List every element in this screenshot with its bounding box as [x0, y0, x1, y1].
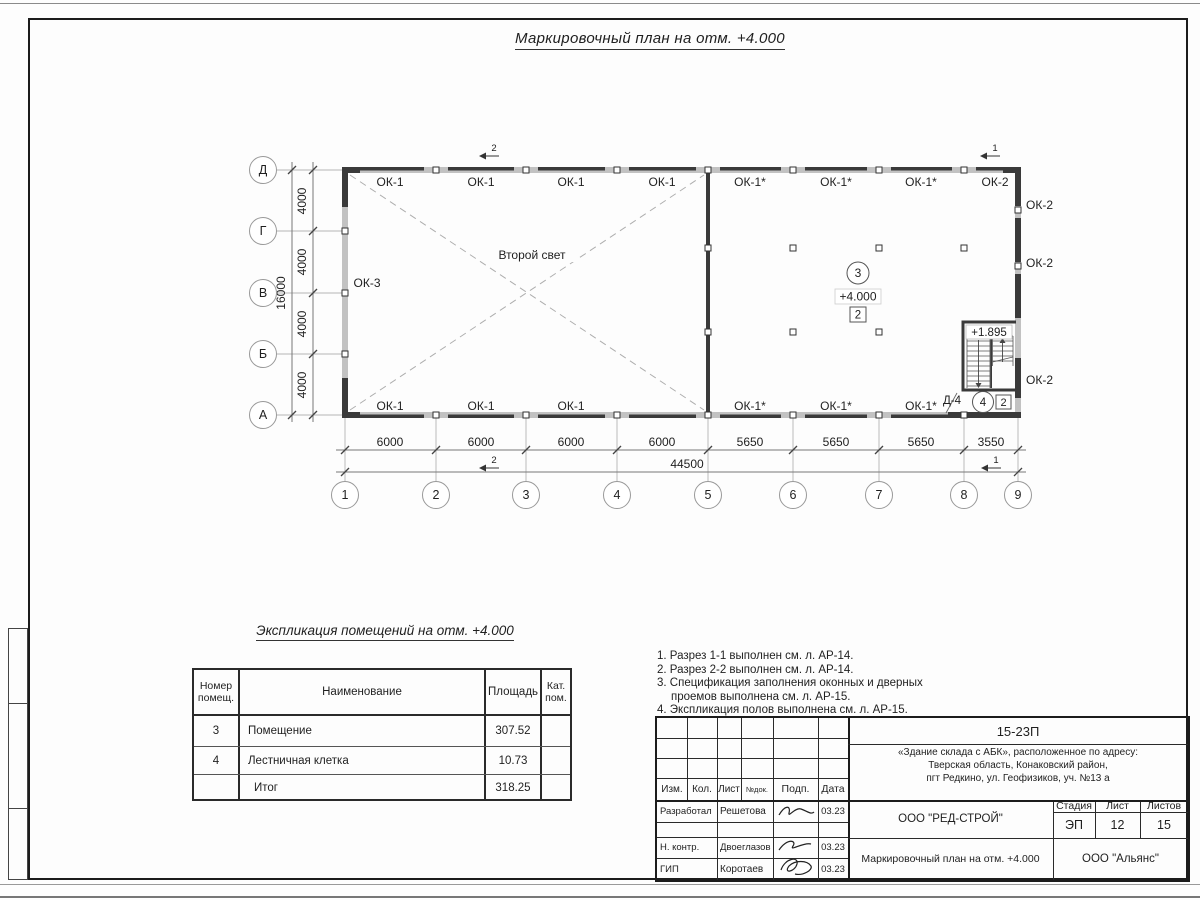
axis-label: Д: [259, 163, 268, 177]
window-label: ОК-1*: [905, 399, 937, 413]
table-cell: 10.73: [486, 748, 540, 774]
note-line: проемов выполнена см. л. АР-15.: [657, 691, 923, 705]
tb-sheet-label: Лист: [1095, 800, 1140, 812]
tb-header-kol: Кол.: [687, 778, 717, 800]
window-label: ОК-2: [982, 175, 1009, 189]
tb-name: Коротаев: [720, 858, 774, 880]
section-marker-1-top: 1: [980, 143, 1000, 160]
table-cell: Помещение: [240, 716, 484, 746]
dim-value: 4000: [295, 371, 309, 398]
column-header: Площадь: [486, 670, 540, 714]
explication-table: Номер помещ. Наименование Площадь Кат. п…: [192, 668, 572, 801]
title-block: Изм. Кол. Лист №док. Подп. Дата Разработ…: [655, 716, 1190, 882]
tb-header-doc: №док.: [741, 778, 773, 800]
explication-title: Экспликация помещений на отм. +4.000: [205, 622, 565, 641]
room-4-tag: Д-4 4 2: [943, 392, 1011, 413]
window-label: ОК-2: [1026, 373, 1053, 387]
axis-label: 7: [876, 488, 883, 502]
explication-title-text: Экспликация помещений на отм. +4.000: [256, 623, 514, 641]
axis-bubbles-bottom: 1 2 3 4 5 6 7 8 9: [332, 482, 1032, 509]
window-label: ОК-2: [1026, 256, 1053, 270]
table-cell: 318.25: [486, 776, 540, 799]
tb-stage-value: ЭП: [1053, 812, 1095, 838]
window-label: ОК-3: [354, 276, 381, 290]
window-label: ОК-1: [468, 399, 495, 413]
axis-label: Б: [259, 347, 267, 361]
tb-date: 03.23: [818, 837, 848, 858]
dim-value: 5650: [823, 435, 850, 449]
tb-sheets-value: 15: [1140, 812, 1188, 838]
axis-label: 6: [790, 488, 797, 502]
window-label: ОК-1: [649, 175, 676, 189]
table-cell: 4: [194, 748, 238, 774]
walls: [342, 167, 1021, 418]
dim-total-value: 44500: [670, 457, 704, 471]
table-divider: [194, 774, 570, 775]
tb-company: ООО "РЕД-СТРОЙ": [848, 800, 1053, 838]
room-elevation: +4.000: [839, 290, 876, 304]
dim-value: 5650: [737, 435, 764, 449]
section-marker-2-bottom: 2: [479, 455, 499, 472]
column-header: Кат. пом.: [542, 670, 570, 714]
axis-label: А: [259, 408, 268, 422]
room-type-badge: 2: [1000, 397, 1006, 409]
window-label: ОК-1: [377, 175, 404, 189]
axis-label: 2: [433, 488, 440, 502]
section-marker-label: 2: [491, 143, 496, 154]
axis-label: 8: [961, 488, 968, 502]
tb-sheet-value: 12: [1095, 812, 1140, 838]
drawing-sheet: Маркировочный план на отм. +4.000: [0, 0, 1200, 900]
window-label: ОК-1*: [734, 175, 766, 189]
signature-gip: [773, 836, 819, 880]
section-markers: 2 1 2 1: [479, 143, 1001, 472]
section-marker-2-top: 2: [479, 143, 499, 160]
tb-header-data: Дата: [818, 778, 848, 800]
dim-value: 6000: [377, 435, 404, 449]
tb-date: 03.23: [818, 800, 848, 822]
tb-name: Решетова: [720, 800, 772, 822]
section-marker-1-bottom: 1: [981, 455, 1001, 472]
axis-label: 5: [705, 488, 712, 502]
room-3-tag: 3 +4.000 2: [835, 262, 881, 322]
axis-label: 9: [1015, 488, 1022, 502]
dim-value: 5650: [908, 435, 935, 449]
table-cell: Итог: [240, 776, 484, 799]
tb-role: Н. контр.: [660, 837, 716, 858]
table-divider: [194, 746, 570, 747]
window-label: ОК-1*: [820, 399, 852, 413]
section-marker-label: 1: [992, 143, 997, 154]
dimensions-left: 4000 4000 4000 4000 16000: [274, 162, 317, 422]
tb-stage-label: Стадия: [1053, 800, 1095, 812]
table-cell: 3: [194, 716, 238, 746]
tb-address-line: пгт Редкино, ул. Геофизиков, уч. №13 а: [848, 772, 1188, 785]
window-label: ОК-2: [1026, 198, 1053, 212]
second-light-cross: Второй свет: [350, 175, 704, 410]
section-marker-label: 2: [491, 455, 496, 466]
column-header: Номер помещ.: [194, 670, 238, 714]
window-label: ОК-1: [558, 175, 585, 189]
tb-header-podp: Подп.: [773, 778, 818, 800]
dimensions-bottom: 6000 6000 6000 6000 5650 5650 5650 3550 …: [336, 435, 1026, 476]
window-labels: ОК-1 ОК-1 ОК-1 ОК-1 ОК-1* ОК-1* ОК-1* ОК…: [354, 175, 1054, 413]
tb-sheet-title: Маркировочный план на отм. +4.000: [848, 838, 1053, 880]
axis-label: 3: [523, 488, 530, 502]
axis-label: 4: [614, 488, 621, 502]
room-type-badge: 2: [855, 310, 861, 322]
column-header: Наименование: [240, 670, 484, 714]
axis-label: Г: [260, 224, 267, 238]
tb-doc-number: 15-23П: [848, 718, 1188, 744]
dim-value: 6000: [649, 435, 676, 449]
windows: [342, 167, 1021, 418]
tb-name: Двоеглазов: [720, 837, 774, 858]
door-label: Д-4: [943, 395, 962, 407]
dim-value: 4000: [295, 248, 309, 275]
room-number: 4: [980, 397, 987, 409]
columns: [342, 167, 1021, 418]
tb-role: Разработал: [660, 800, 716, 822]
dimension-values: 6000 6000 6000 6000 5650 5650 5650 3550 …: [377, 435, 1005, 471]
window-label: ОК-1: [468, 175, 495, 189]
window-label: ОК-1: [558, 399, 585, 413]
tb-address-line: Тверская область, Конаковский район,: [848, 759, 1188, 772]
dim-value: 4000: [295, 310, 309, 337]
note-line: 1. Разрез 1-1 выполнен см. л. АР-14.: [657, 650, 923, 664]
tb-header-izm: Изм.: [657, 778, 687, 800]
note-line: 2. Разрез 2-2 выполнен см. л. АР-14.: [657, 664, 923, 678]
section-marker-label: 1: [993, 455, 998, 466]
dim-value: 6000: [468, 435, 495, 449]
note-line: 3. Спецификация заполнения оконных и две…: [657, 677, 923, 691]
tb-address-line: «Здание склада с АБК», расположенное по …: [848, 746, 1188, 759]
dim-value: 4000: [295, 187, 309, 214]
axis-label: 1: [342, 488, 349, 502]
tb-date: 03.23: [818, 858, 848, 880]
table-cell: 307.52: [486, 716, 540, 746]
signature-reshetova: [775, 801, 817, 821]
window-label: ОК-1*: [905, 175, 937, 189]
dim-value: 3550: [978, 435, 1005, 449]
axis-bubbles-left: Д Г В Б А: [250, 157, 277, 429]
notes: 1. Разрез 1-1 выполнен см. л. АР-14. 2. …: [657, 650, 923, 718]
tb-address: «Здание склада с АБК», расположенное по …: [848, 746, 1188, 785]
table-cell: Лестничная клетка: [240, 748, 484, 774]
window-label: ОК-1*: [820, 175, 852, 189]
dim-value: 6000: [558, 435, 585, 449]
stair-elevation: +1.895: [971, 327, 1007, 339]
second-light-label: Второй свет: [498, 248, 566, 262]
tb-header-list: Лист: [717, 778, 741, 800]
window-label: ОК-1*: [734, 399, 766, 413]
tb-org: ООО "Альянс": [1053, 838, 1188, 880]
tb-role: ГИП: [660, 858, 716, 880]
tb-sheets-label: Листов: [1140, 800, 1188, 812]
axis-label: В: [259, 286, 267, 300]
room-number: 3: [855, 266, 862, 280]
window-label: ОК-1: [377, 399, 404, 413]
